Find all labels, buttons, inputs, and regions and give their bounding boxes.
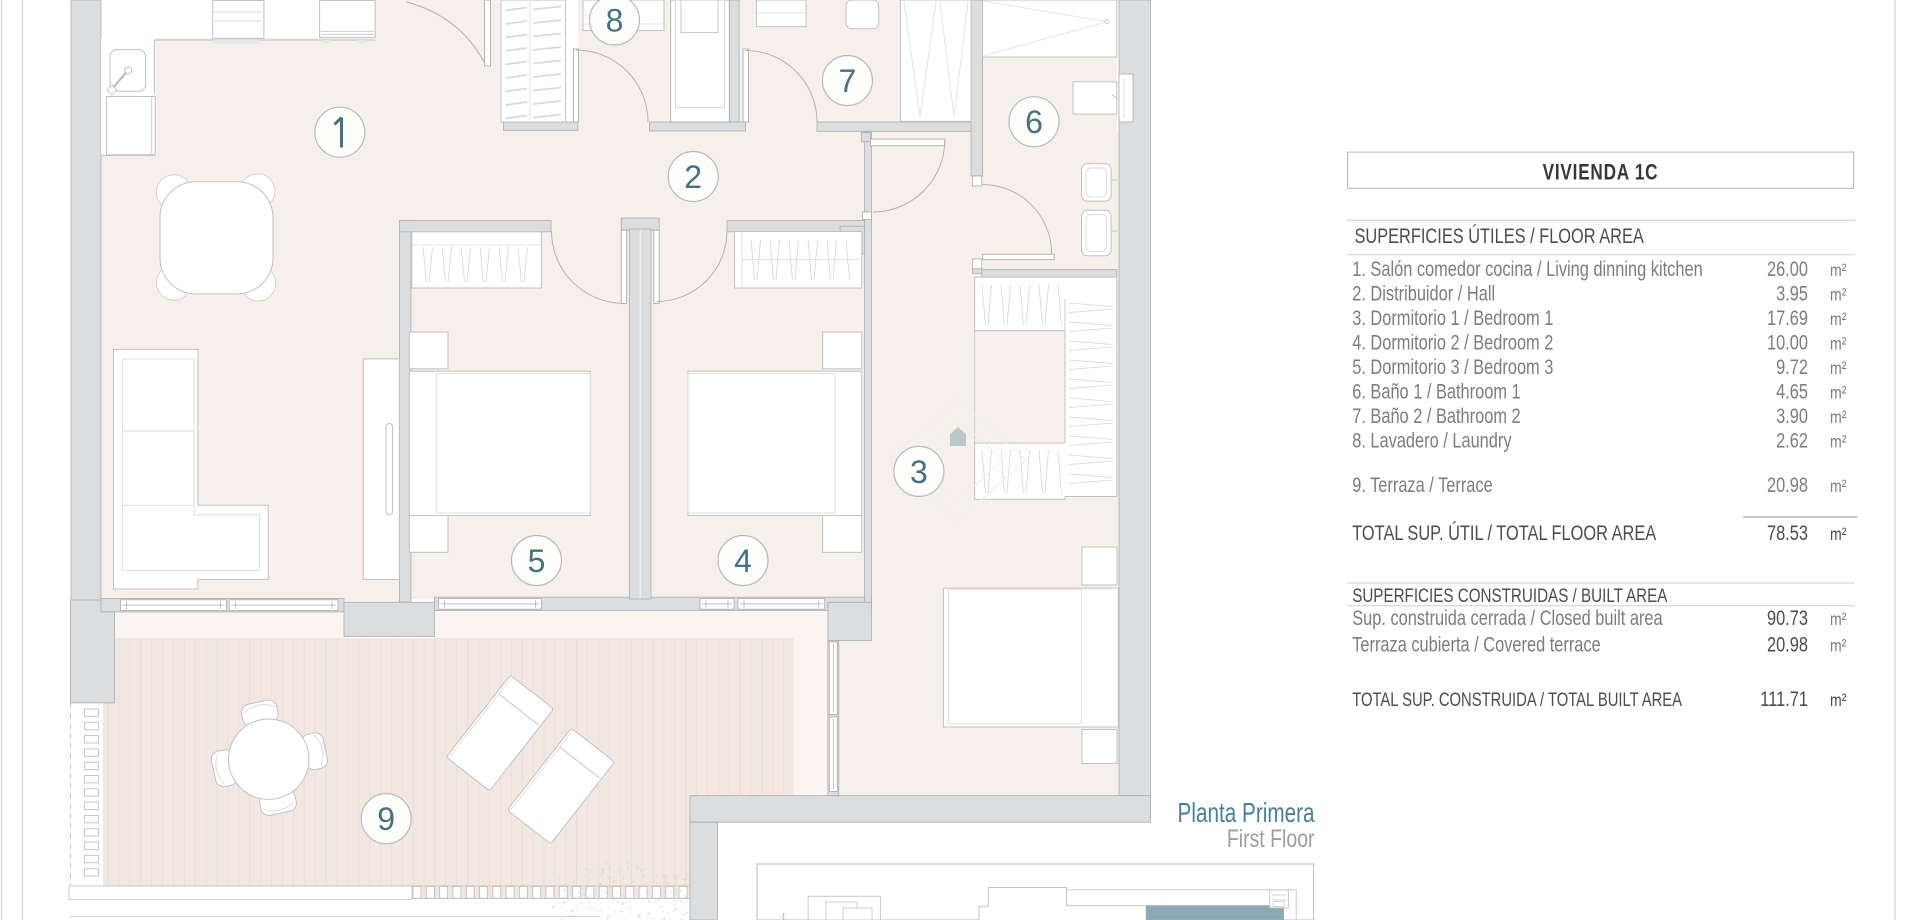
svg-text:2.62: 2.62 xyxy=(1776,429,1808,452)
svg-text:9: 9 xyxy=(377,801,395,837)
svg-text:Sup. construida cerrada / Clos: Sup. construida cerrada / Closed built a… xyxy=(1352,606,1663,629)
svg-text:m²: m² xyxy=(1830,383,1847,403)
svg-text:m²: m² xyxy=(1830,334,1847,354)
svg-text:m²: m² xyxy=(1830,285,1847,305)
svg-text:m²: m² xyxy=(1830,358,1847,378)
svg-text:TOTAL SUP. CONSTRUIDA / TOTAL: TOTAL SUP. CONSTRUIDA / TOTAL BUILT AREA xyxy=(1352,689,1682,710)
svg-text:2: 2 xyxy=(684,159,702,195)
svg-text:m²: m² xyxy=(1830,476,1847,496)
svg-text:3.90: 3.90 xyxy=(1776,404,1808,427)
svg-text:3.95: 3.95 xyxy=(1776,282,1808,305)
svg-text:m²: m² xyxy=(1830,524,1847,544)
svg-text:20.98: 20.98 xyxy=(1767,473,1808,496)
svg-text:8. Lavadero / Laundry: 8. Lavadero / Laundry xyxy=(1352,429,1512,452)
svg-text:SUPERFICIES CONSTRUIDAS / BUIL: SUPERFICIES CONSTRUIDAS / BUILT AREA xyxy=(1352,584,1668,606)
svg-text:17.69: 17.69 xyxy=(1767,306,1808,329)
svg-text:3. Dormitorio 1 / Bedroom 1: 3. Dormitorio 1 / Bedroom 1 xyxy=(1352,306,1553,329)
svg-text:{:: {: xyxy=(782,912,787,920)
svg-text:m²: m² xyxy=(1830,432,1847,452)
svg-text:10.00: 10.00 xyxy=(1767,331,1808,354)
svg-text:7: 7 xyxy=(839,63,857,99)
svg-text:2. Distribuidor / Hall: 2. Distribuidor / Hall xyxy=(1352,282,1495,305)
svg-text:6: 6 xyxy=(1025,104,1043,140)
svg-text:VIVIENDA 1C: VIVIENDA 1C xyxy=(1543,161,1659,186)
svg-text:9.72: 9.72 xyxy=(1776,355,1808,378)
svg-text:m²: m² xyxy=(1830,260,1847,280)
svg-text:1. Salón comedor cocina / Livi: 1. Salón comedor cocina / Living dinning… xyxy=(1352,257,1702,280)
svg-text:26.00: 26.00 xyxy=(1767,257,1808,280)
svg-text:3: 3 xyxy=(910,454,928,490)
svg-text:90.73: 90.73 xyxy=(1767,606,1808,629)
svg-text:SUPERFICIES ÚTILES / FLOOR ARE: SUPERFICIES ÚTILES / FLOOR AREA xyxy=(1354,224,1644,247)
svg-text:4.65: 4.65 xyxy=(1776,380,1808,403)
svg-text:4. Dormitorio 2 / Bedroom 2: 4. Dormitorio 2 / Bedroom 2 xyxy=(1352,331,1553,354)
svg-text:m²: m² xyxy=(1830,690,1847,710)
svg-text:7. Baño 2 / Bathroom 2: 7. Baño 2 / Bathroom 2 xyxy=(1352,404,1520,427)
svg-text:Terraza cubierta / Covered ter: Terraza cubierta / Covered terrace xyxy=(1352,633,1600,656)
svg-text:8: 8 xyxy=(606,3,624,39)
svg-text:m²: m² xyxy=(1830,309,1847,329)
svg-text:111.71: 111.71 xyxy=(1760,687,1808,710)
svg-text:20.98: 20.98 xyxy=(1767,633,1808,656)
svg-text:TOTAL SUP. ÚTIL / TOTAL FLOOR: TOTAL SUP. ÚTIL / TOTAL FLOOR AREA xyxy=(1352,521,1656,544)
svg-text:5. Dormitorio 3 / Bedroom 3: 5. Dormitorio 3 / Bedroom 3 xyxy=(1352,355,1553,378)
svg-text:4: 4 xyxy=(734,543,752,579)
svg-text:9. Terraza / Terrace: 9. Terraza / Terrace xyxy=(1352,473,1492,496)
svg-text:m²: m² xyxy=(1830,636,1847,656)
svg-text:6. Baño 1 / Bathroom 1: 6. Baño 1 / Bathroom 1 xyxy=(1352,380,1520,403)
svg-text:First Floor: First Floor xyxy=(1227,825,1315,853)
svg-text:m²: m² xyxy=(1830,407,1847,427)
svg-text:78.53: 78.53 xyxy=(1767,521,1808,544)
svg-text:5: 5 xyxy=(528,543,546,579)
svg-text:m²: m² xyxy=(1830,609,1847,629)
